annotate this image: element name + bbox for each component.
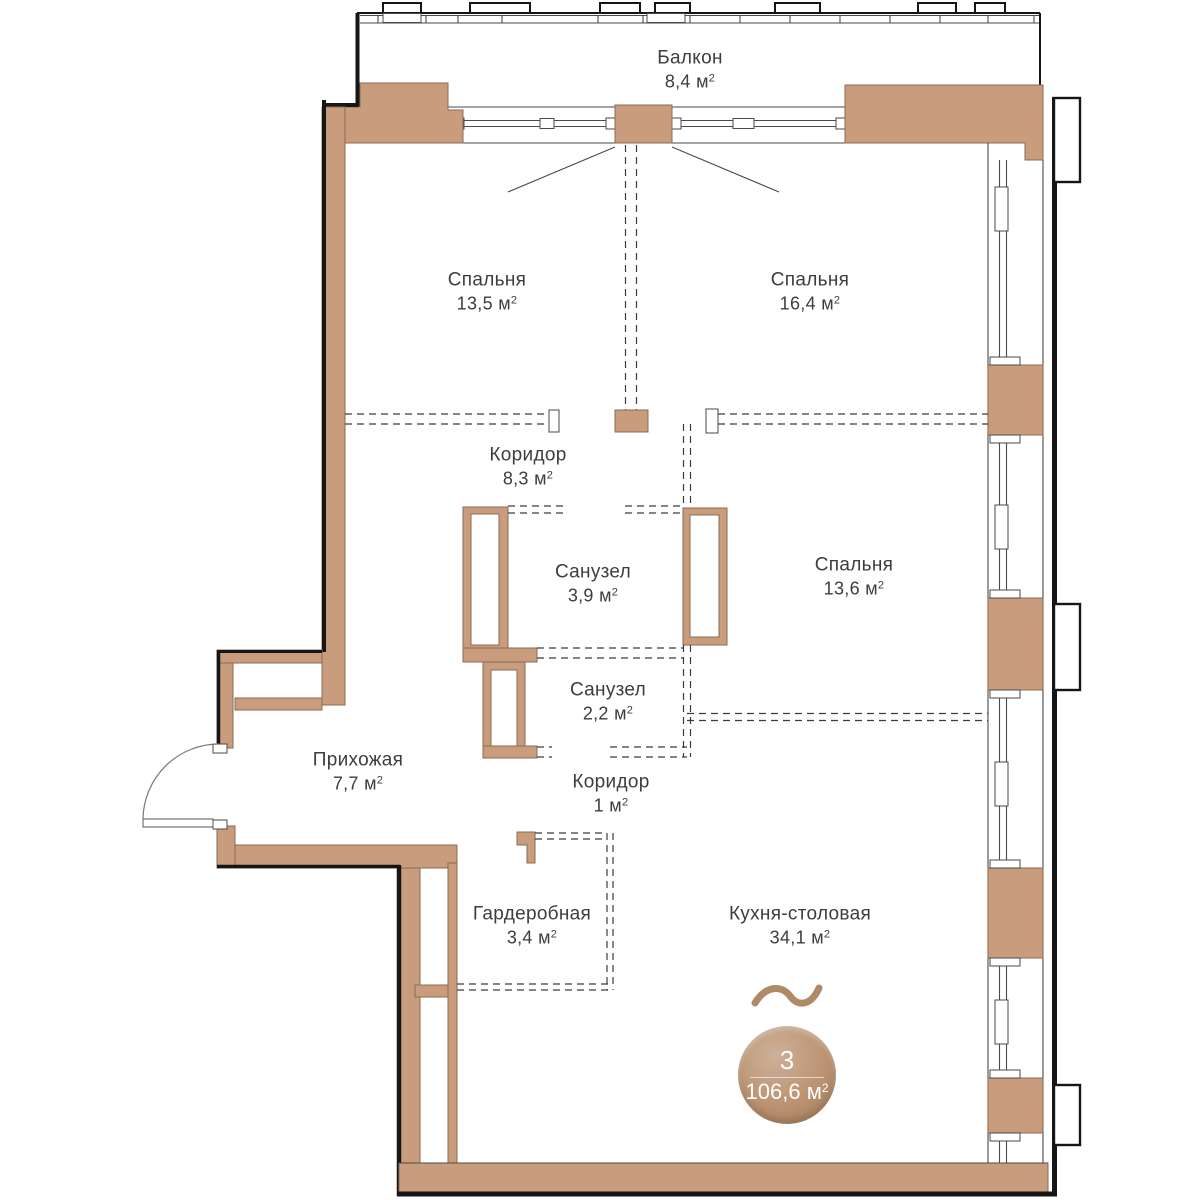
badge-divider <box>750 1077 824 1078</box>
room-label-corridor-1: Коридор 8,3 м2 <box>489 443 566 490</box>
room-label-wardrobe: Гардеробная 3,4 м2 <box>473 902 591 949</box>
total-area-badge: 3 106,6 м2 <box>738 1026 836 1124</box>
room-label-balcony: Балкон 8,4 м2 <box>657 46 723 93</box>
entry-door <box>143 744 227 829</box>
outer-walls <box>217 83 1080 1196</box>
room-label-bedroom-2: Спальня 16,4 м2 <box>771 268 849 315</box>
room-label-kitchen: Кухня-столовая 34,1 м2 <box>729 902 871 949</box>
room-label-bedroom-1: Спальня 13,5 м2 <box>448 268 526 315</box>
wave-icon <box>747 980 827 1012</box>
room-label-bathroom-2: Санузел 2,2 м2 <box>570 678 646 725</box>
total-area: 106,6 м2 <box>746 1081 829 1103</box>
door-swing-arc <box>143 744 219 819</box>
room-label-bedroom-3: Спальня 13,6 м2 <box>815 553 893 600</box>
room-label-corridor-2: Коридор 1 м2 <box>572 770 649 817</box>
room-label-hallway: Прихожая 7,7 м2 <box>313 748 403 795</box>
rooms-count: 3 <box>780 1047 794 1073</box>
room-label-bathroom-1: Санузел 3,9 м2 <box>555 560 631 607</box>
floorplan-page: .tan{fill:#C99C7E;stroke:#8a6b50;stroke-… <box>0 0 1200 1200</box>
